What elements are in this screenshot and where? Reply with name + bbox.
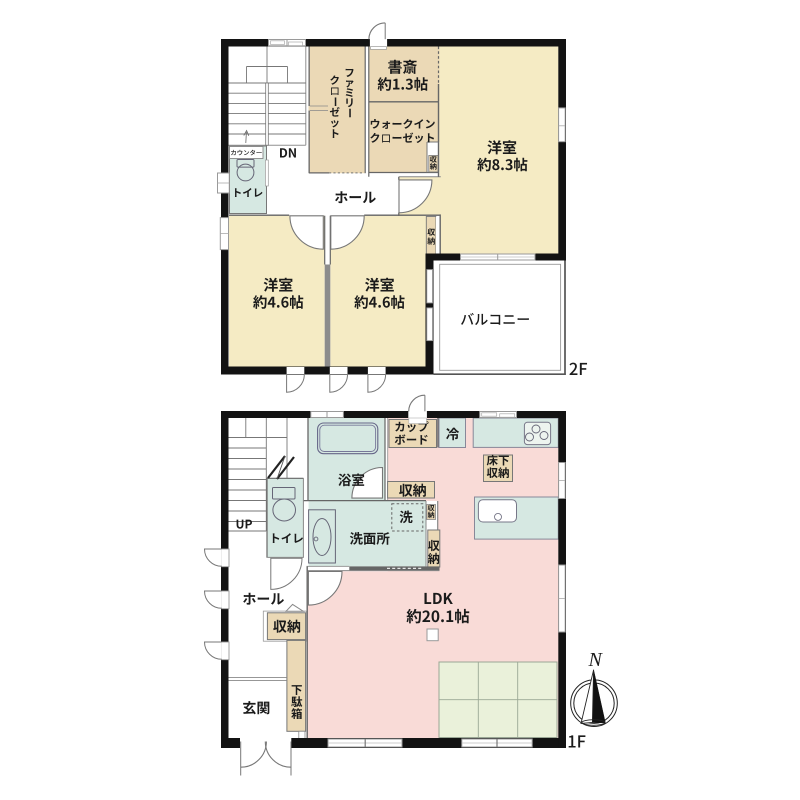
svg-text:納: 納	[428, 550, 440, 567]
svg-text:洗: 洗	[399, 506, 413, 526]
svg-text:バルコニー: バルコニー	[460, 309, 530, 329]
svg-text:ホール: ホール	[242, 589, 284, 609]
svg-text:箱: 箱	[291, 706, 303, 722]
svg-text:約1.3帖: 約1.3帖	[377, 74, 428, 95]
svg-text:収納: 収納	[399, 480, 427, 500]
svg-text:カウンター: カウンター	[230, 148, 262, 157]
svg-text:約4.6帖: 約4.6帖	[253, 292, 304, 313]
svg-text:クローゼット: クローゼット	[370, 130, 436, 146]
svg-text:ボード: ボード	[394, 432, 429, 448]
svg-text:納: 納	[428, 511, 435, 521]
svg-text:収納: 収納	[273, 617, 301, 637]
svg-text:玄関: 玄関	[242, 698, 270, 718]
svg-text:約4.6帖: 約4.6帖	[354, 292, 405, 313]
svg-text:納: 納	[430, 162, 437, 172]
svg-text:N: N	[588, 649, 604, 671]
svg-text:DN: DN	[279, 143, 297, 162]
svg-text:ホール: ホール	[334, 188, 376, 208]
svg-text:浴室: 浴室	[338, 469, 365, 489]
svg-text:ー: ー	[342, 108, 357, 119]
svg-text:UP: UP	[236, 516, 253, 533]
svg-text:2F: 2F	[569, 356, 588, 380]
svg-text:洗面所: 洗面所	[349, 527, 390, 547]
svg-text:収納: 収納	[487, 465, 510, 481]
svg-text:トイレ: トイレ	[232, 186, 264, 201]
svg-text:トイレ: トイレ	[269, 531, 304, 547]
svg-text:約20.1帖: 約20.1帖	[406, 605, 469, 627]
svg-text:約8.3帖: 約8.3帖	[477, 154, 528, 175]
svg-text:1F: 1F	[567, 728, 586, 752]
svg-text:冷: 冷	[446, 423, 460, 443]
svg-text:納: 納	[427, 236, 435, 247]
svg-text:ト: ト	[330, 126, 341, 141]
